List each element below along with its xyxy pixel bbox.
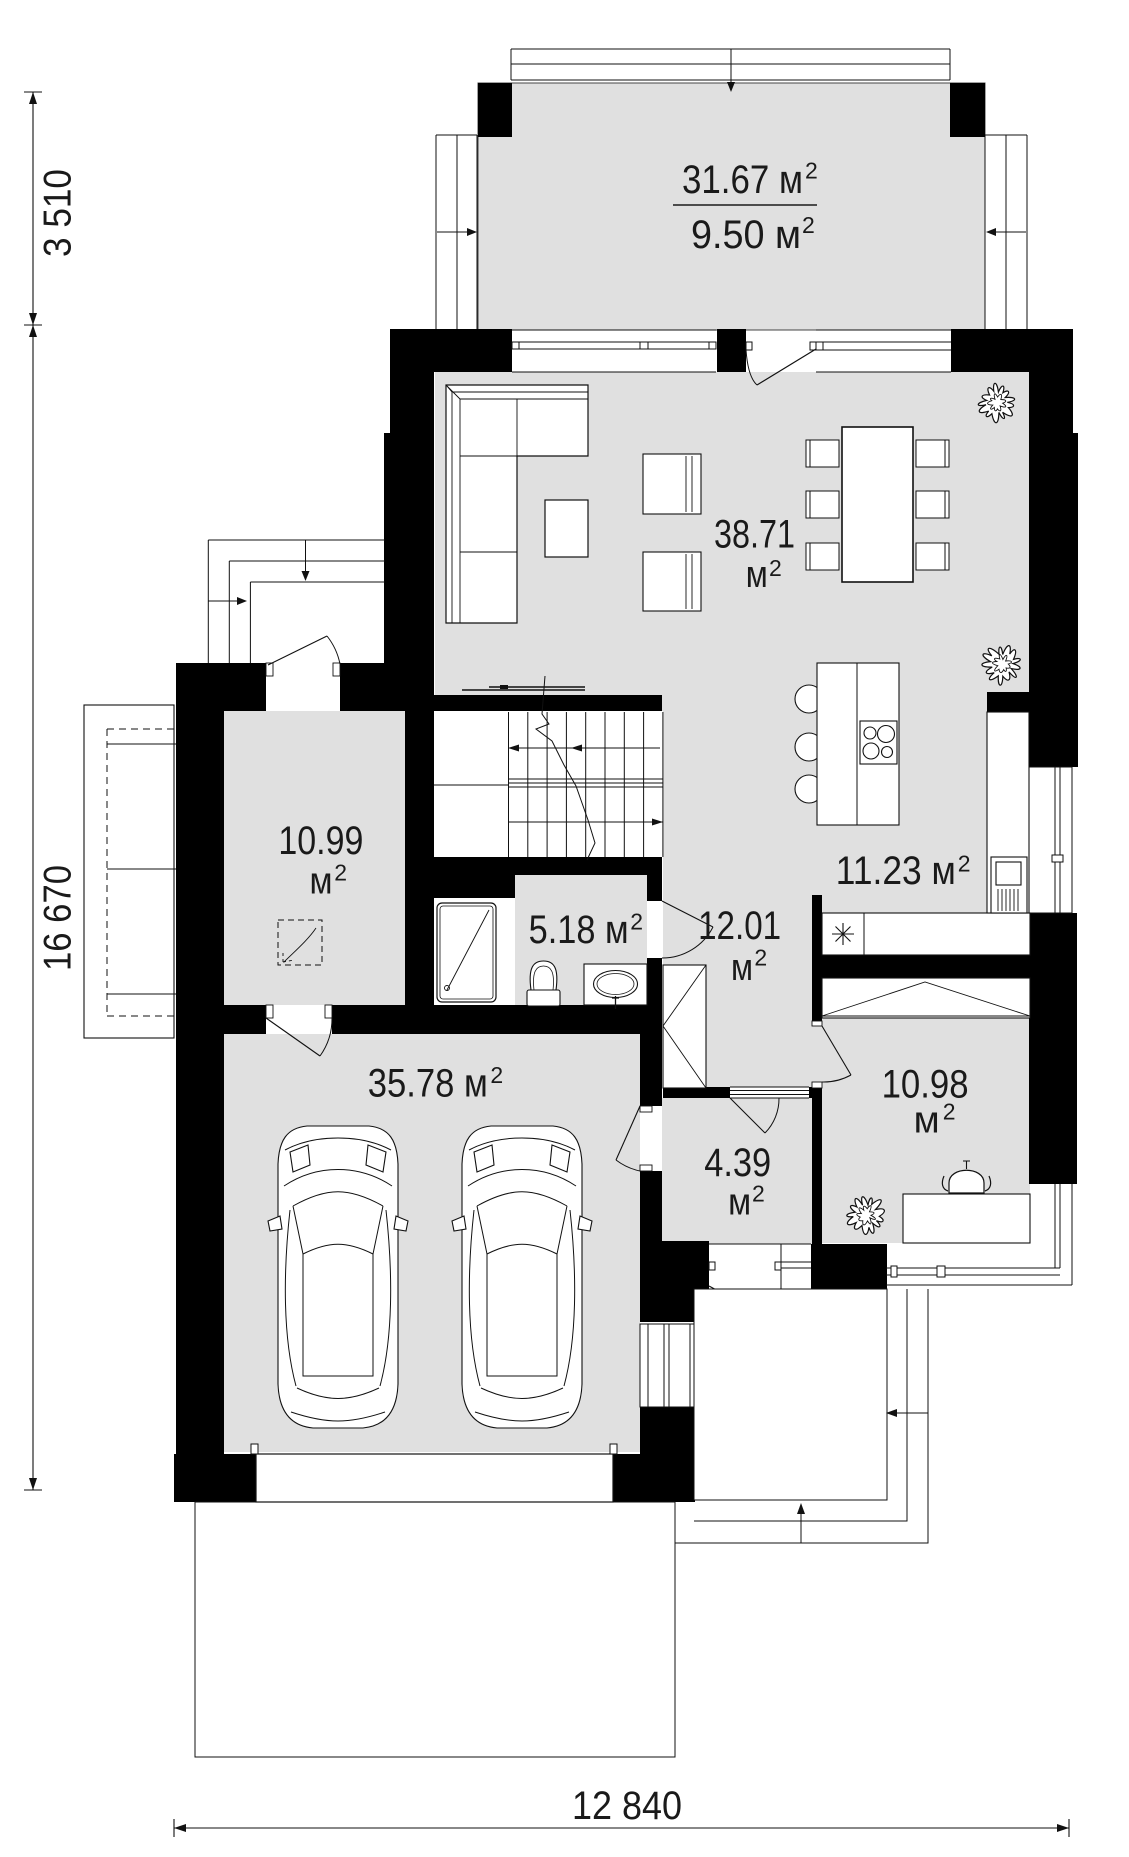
- svg-text:2: 2: [769, 555, 782, 581]
- svg-text:38.71: 38.71: [714, 513, 795, 557]
- svg-text:м: м: [731, 947, 753, 989]
- svg-text:м: м: [310, 861, 333, 903]
- svg-text:10.99: 10.99: [278, 819, 363, 863]
- svg-text:м: м: [914, 1099, 940, 1141]
- svg-text:12 840: 12 840: [572, 1784, 682, 1828]
- svg-text:2: 2: [943, 1098, 956, 1124]
- svg-text:2: 2: [805, 157, 818, 183]
- svg-text:9.50 м: 9.50 м: [691, 213, 801, 257]
- svg-text:м: м: [746, 554, 768, 596]
- svg-text:12.01: 12.01: [698, 904, 781, 948]
- svg-text:2: 2: [958, 850, 971, 876]
- svg-text:2: 2: [334, 860, 347, 886]
- svg-text:4.39: 4.39: [704, 1141, 771, 1185]
- svg-text:2: 2: [630, 908, 643, 934]
- svg-text:3 510: 3 510: [37, 169, 80, 257]
- svg-text:35.78 м: 35.78 м: [368, 1062, 488, 1106]
- svg-text:5.18 м: 5.18 м: [529, 908, 629, 952]
- svg-text:2: 2: [802, 212, 815, 238]
- svg-text:31.67 м: 31.67 м: [682, 158, 803, 202]
- svg-text:11.23 м: 11.23 м: [836, 849, 956, 893]
- svg-text:16 670: 16 670: [37, 865, 80, 971]
- svg-text:м: м: [728, 1181, 751, 1223]
- svg-text:2: 2: [752, 1180, 765, 1206]
- svg-text:2: 2: [490, 1062, 503, 1088]
- svg-text:2: 2: [754, 945, 767, 971]
